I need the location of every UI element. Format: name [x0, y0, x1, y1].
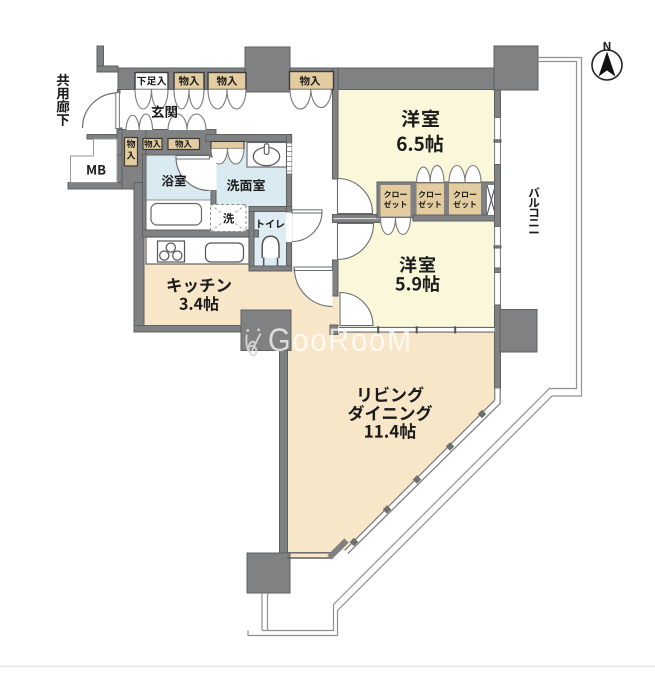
svg-text:GooRooM: GooRooM	[268, 322, 413, 358]
